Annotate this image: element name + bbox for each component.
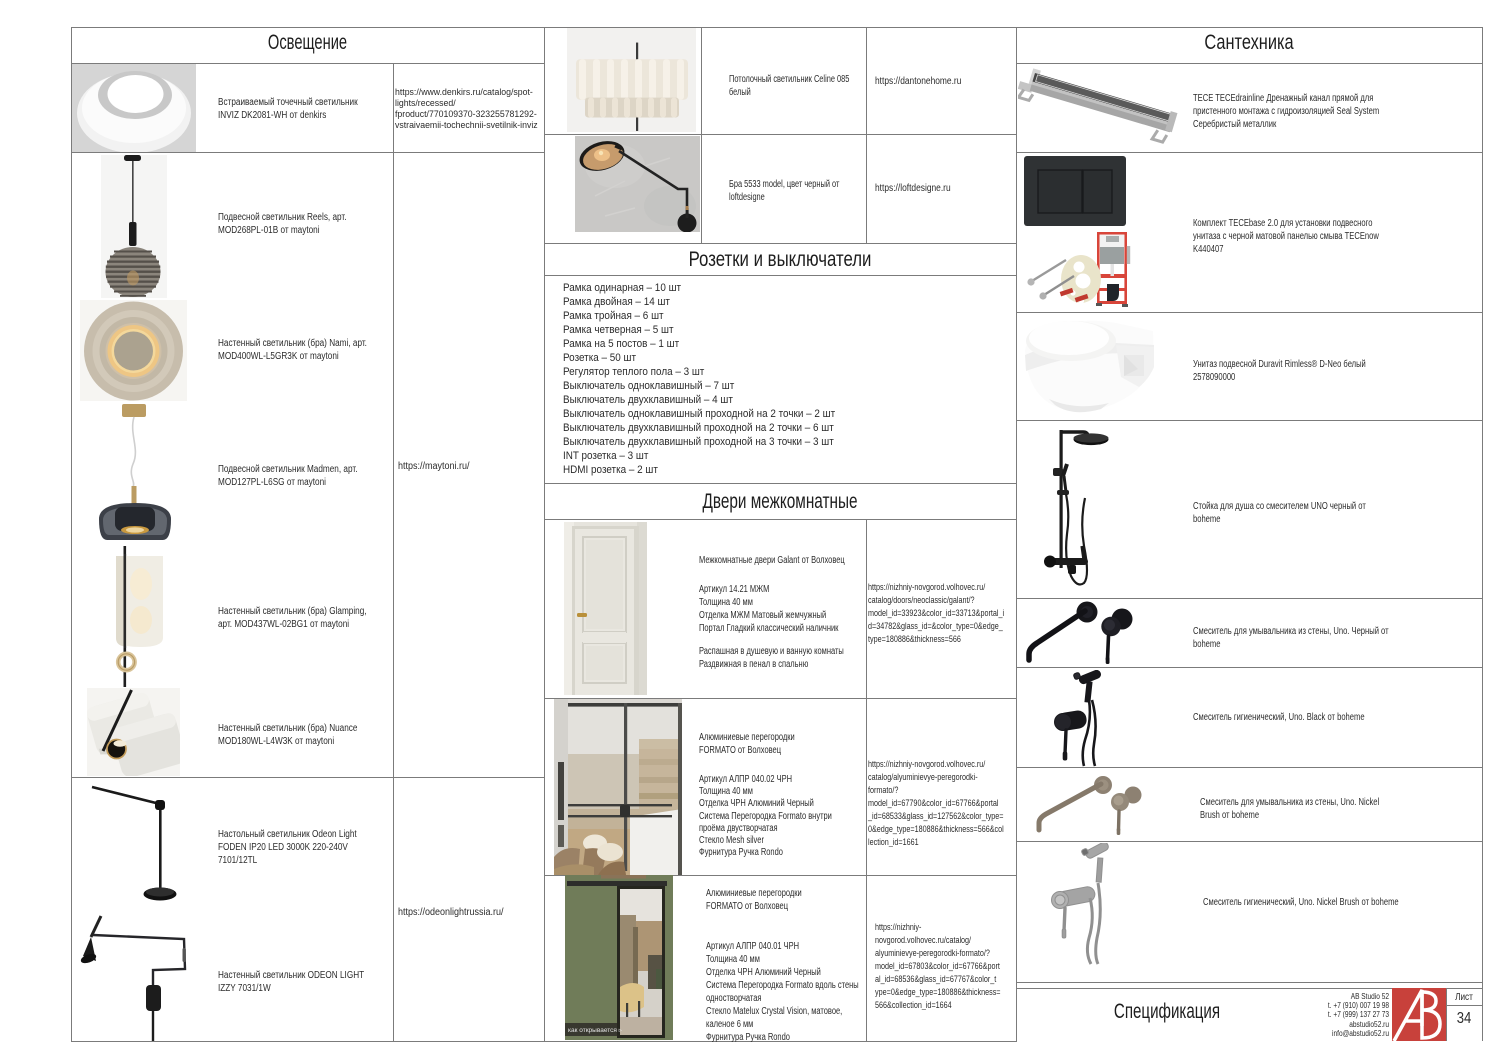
svg-text:как открывается ▹: как открывается ▹	[568, 1027, 623, 1034]
